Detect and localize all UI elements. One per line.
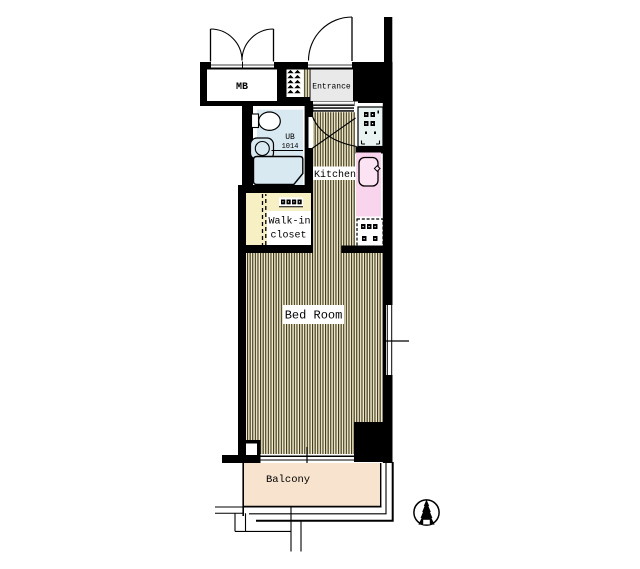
svg-text:Balcony: Balcony: [266, 474, 310, 486]
svg-text:UB: UB: [285, 133, 295, 142]
svg-text:1014: 1014: [282, 143, 299, 151]
svg-text:Walk-in: Walk-in: [269, 216, 311, 228]
svg-text:Entrance: Entrance: [312, 83, 351, 92]
svg-text:closet: closet: [271, 230, 307, 242]
svg-text:Bed Room: Bed Room: [285, 309, 343, 323]
svg-text:MB: MB: [236, 82, 248, 93]
svg-text:Kitchen: Kitchen: [314, 169, 356, 181]
